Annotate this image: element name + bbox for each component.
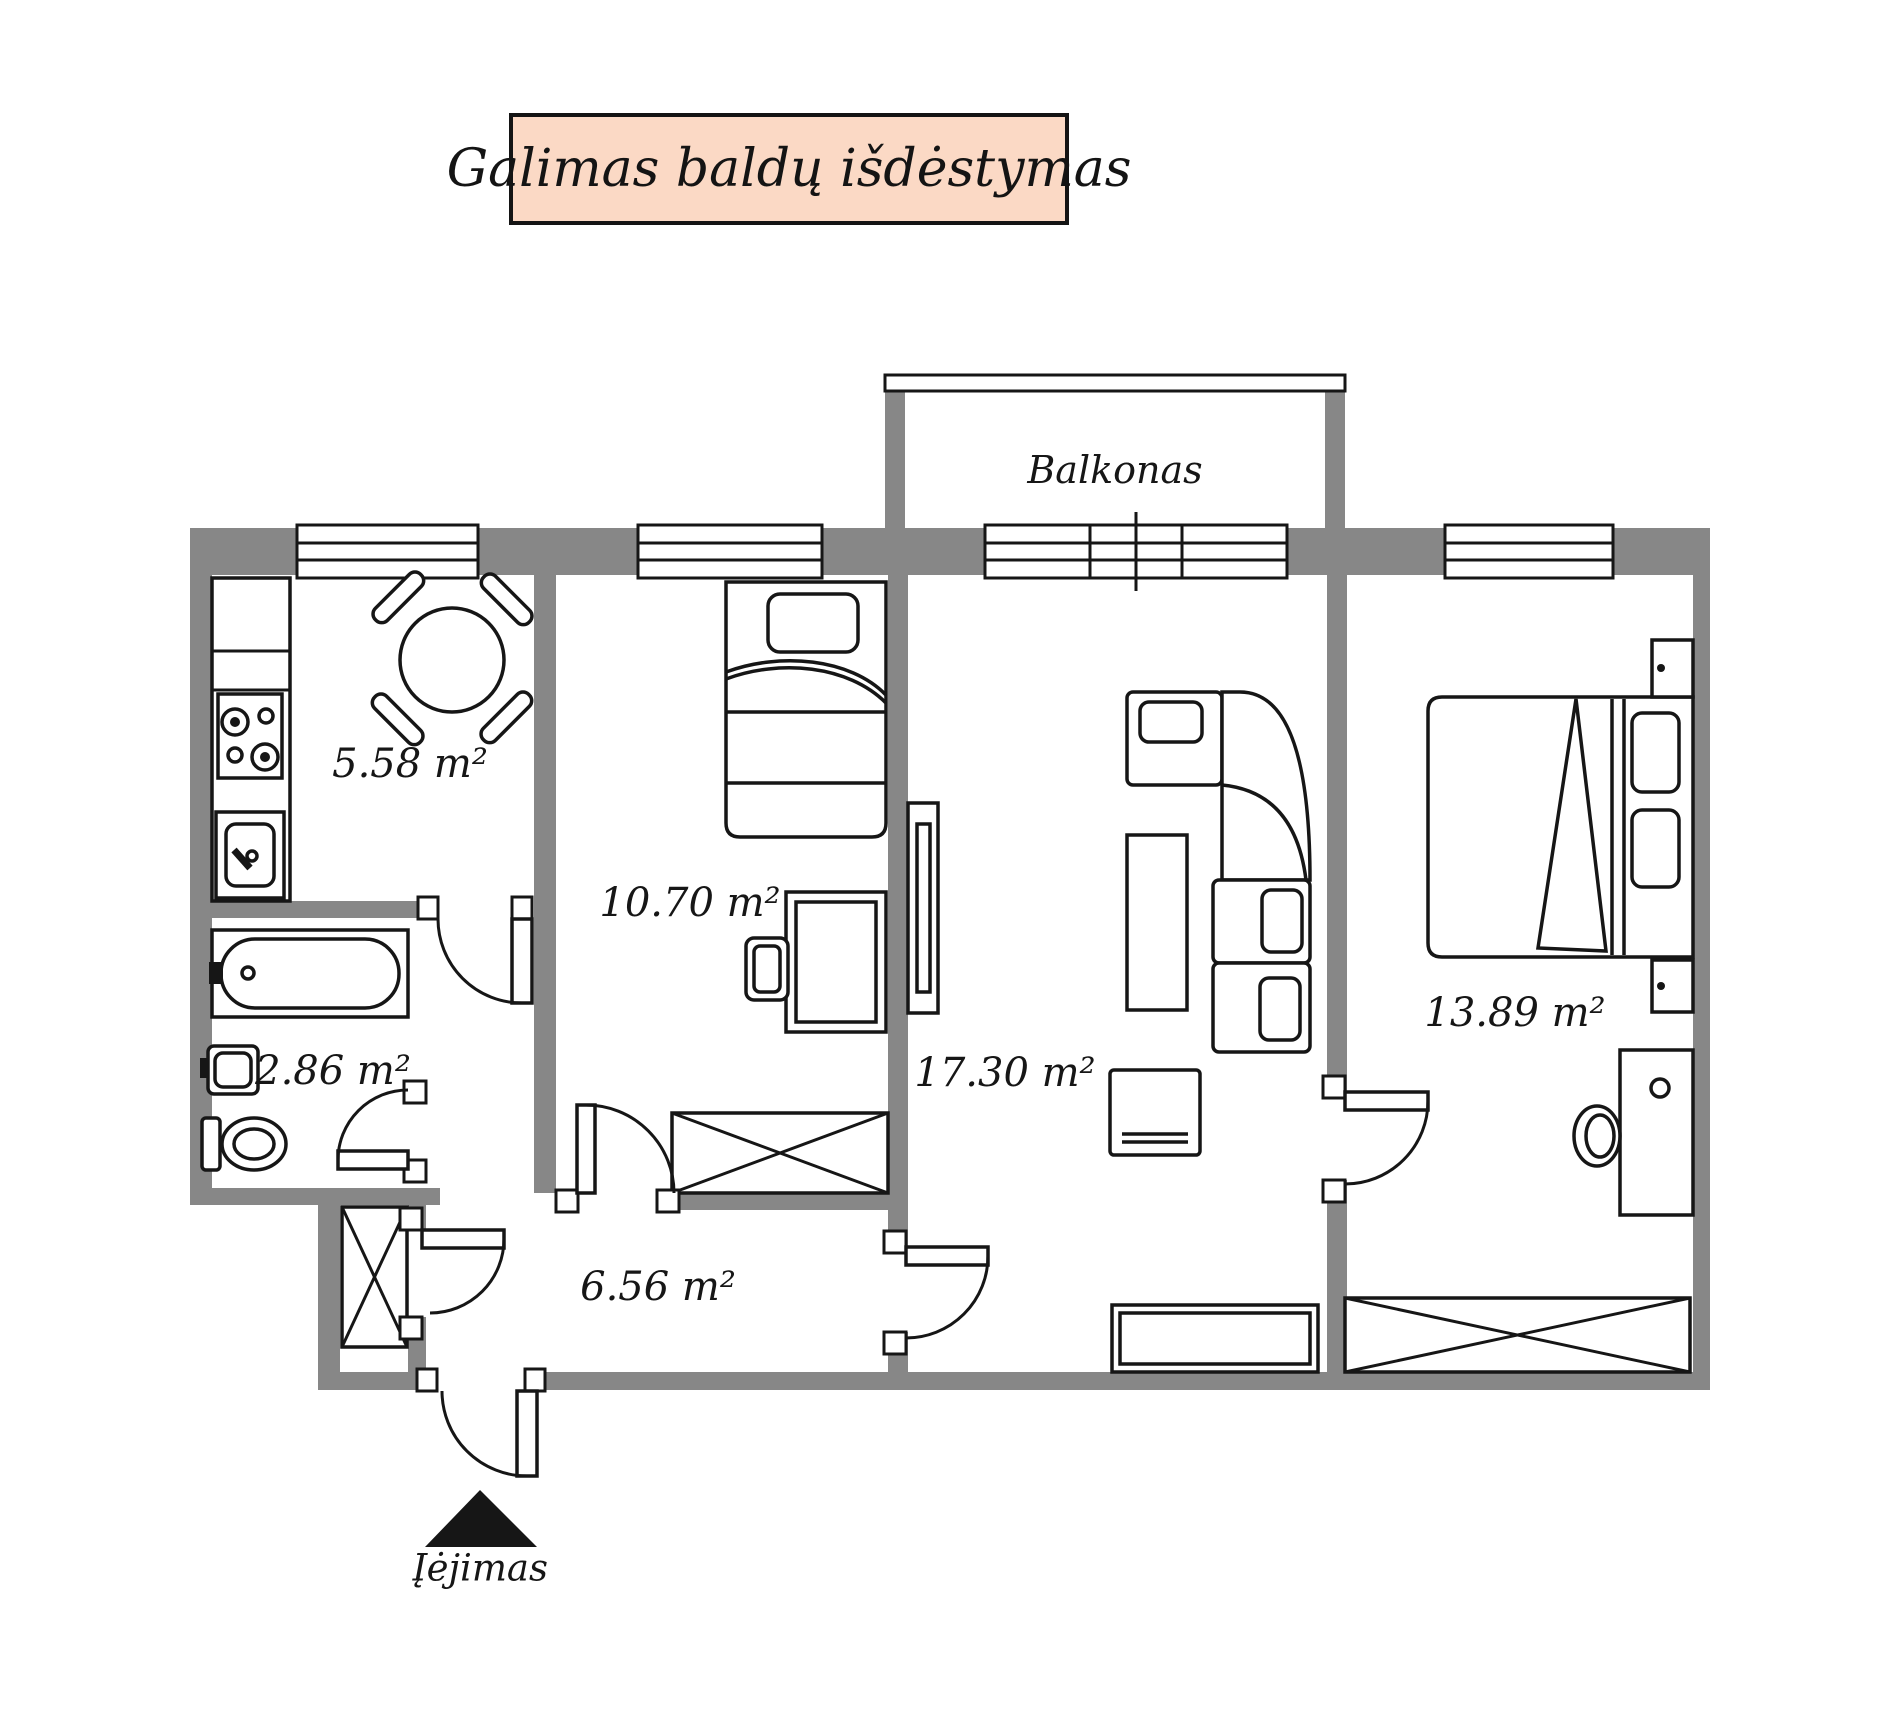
single-bed xyxy=(726,582,886,837)
tv-stand xyxy=(908,803,938,1013)
bedroom-large-door xyxy=(1323,1076,1428,1202)
bedroom-large-window xyxy=(1445,525,1613,578)
armchair xyxy=(1110,1070,1200,1155)
bathtub xyxy=(209,930,408,1017)
wardrobe-small-bedroom xyxy=(672,1113,888,1193)
dining-table xyxy=(369,569,535,748)
bedroom-small-window xyxy=(638,525,822,578)
sideboard xyxy=(1112,1305,1318,1372)
toilet xyxy=(202,1118,286,1170)
bedroom-small-area-label: 10.70 m² xyxy=(599,880,780,926)
balcony-label: Balkonas xyxy=(1027,448,1202,492)
vestibule-door xyxy=(400,1208,504,1339)
balcony-railing xyxy=(885,375,1345,391)
hallway-area-label: 6.56 m² xyxy=(580,1264,736,1310)
kitchen-sink xyxy=(216,812,284,898)
kitchen-window xyxy=(297,525,478,578)
desk-chair xyxy=(746,938,788,1000)
nightstand-bottom xyxy=(1652,960,1693,1012)
bedroom-large-area-label: 13.89 m² xyxy=(1424,990,1605,1036)
bathroom-area-label: 2.86 m² xyxy=(255,1048,411,1094)
wardrobe-large-bedroom xyxy=(1345,1298,1690,1372)
desk xyxy=(786,892,886,1032)
entrance-door xyxy=(417,1369,545,1476)
living-area-label: 17.30 m² xyxy=(914,1050,1095,1096)
floor-plan-drawing xyxy=(0,0,1900,1735)
balcony xyxy=(885,375,1345,391)
dressing-table xyxy=(1620,1050,1693,1215)
washbasin xyxy=(200,1046,258,1094)
nightstand-top xyxy=(1652,640,1693,697)
bathroom-door xyxy=(338,1081,426,1182)
coffee-table xyxy=(1127,835,1187,1010)
hall-closet xyxy=(342,1207,407,1347)
bedroom-small-door xyxy=(556,1105,679,1212)
living-room-door xyxy=(884,1231,988,1354)
double-bed xyxy=(1428,697,1693,957)
stool xyxy=(1574,1106,1620,1166)
kitchen-door xyxy=(418,897,532,1003)
balcony-door-window xyxy=(985,512,1287,591)
entrance-label: Įėjimas xyxy=(412,1547,548,1590)
kitchen-area-label: 5.58 m² xyxy=(332,741,488,787)
entrance-arrow-icon xyxy=(425,1490,537,1547)
floor-plan: Galimas baldų išdėstymas xyxy=(0,0,1900,1735)
stove xyxy=(218,694,282,778)
